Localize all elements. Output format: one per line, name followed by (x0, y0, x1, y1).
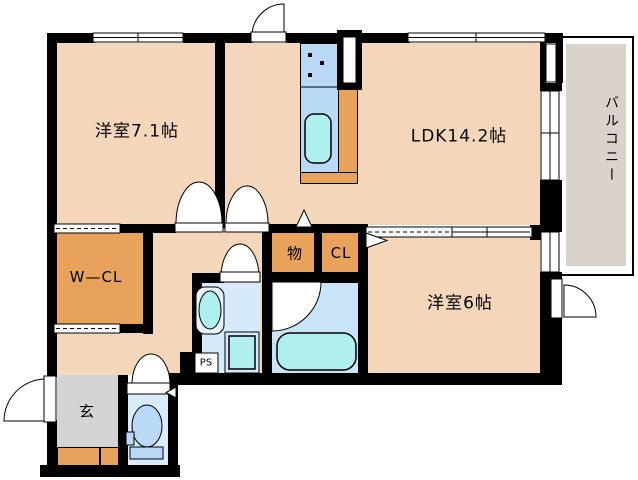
window-corner-slot (546, 44, 556, 82)
door-bathroom (272, 282, 321, 331)
room-label-western6: 洋室6帖 (427, 289, 493, 314)
sliding-door-wcl-top (54, 224, 120, 233)
wash-basin (196, 287, 224, 334)
room-label-ldk: LDK14.2帖 (411, 122, 508, 147)
window-western6-balcony (541, 232, 559, 272)
toilet (126, 405, 163, 459)
washing-machine-pan (225, 332, 259, 373)
room-label-storage: 物 (287, 243, 303, 264)
stove-burner-dots (308, 53, 324, 77)
window-western71-top (93, 33, 183, 42)
sliding-door-wcl-bottom (54, 324, 120, 333)
fixtures-layer (0, 0, 638, 480)
bathtub (277, 333, 356, 370)
sliding-door-ldk-balcony (541, 91, 559, 180)
door-washroom (220, 244, 260, 282)
room-label-balcony: バルコニー (601, 95, 621, 185)
door-western6-exterior (551, 279, 596, 318)
door-top-service (251, 4, 286, 42)
window-ldk-top (408, 33, 545, 42)
kitchen-sink (305, 114, 331, 163)
door-toilet (127, 354, 170, 394)
room-label-wcl: W—CL (70, 268, 123, 286)
door-western71 (175, 182, 223, 232)
duct-slot (343, 37, 356, 83)
room-label-entrance: 玄 (79, 401, 95, 422)
floor-plan: 洋室7.1帖 LDK14.2帖 洋室6帖 W—CL 物 CL 玄 PS バルコニ… (0, 0, 638, 480)
door-entrance (4, 376, 56, 422)
arrow-ldk-opening (296, 210, 312, 227)
room-label-western71: 洋室7.1帖 (95, 117, 179, 142)
room-label-closet: CL (331, 244, 352, 262)
room-label-ps: PS (200, 358, 212, 369)
sliding-partition-ldk-western6 (366, 227, 532, 237)
door-ldk-hall (225, 186, 269, 232)
